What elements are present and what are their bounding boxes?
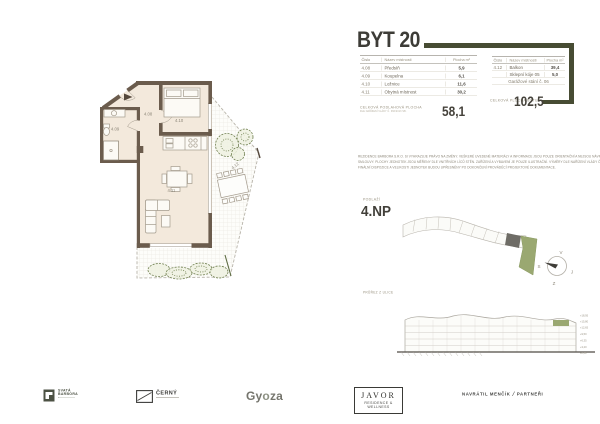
logo-svata-barbora: SVATÁ BARBORA bbox=[43, 389, 98, 415]
compass-west-label: Z bbox=[553, 281, 556, 286]
room-number: 4.11 bbox=[360, 89, 382, 94]
cerny-name: ČERNÝ bbox=[156, 390, 179, 396]
room-name: Koupelna bbox=[382, 73, 446, 78]
svata-barbora-dots bbox=[58, 397, 75, 398]
table-header-row: Číslo Název místnosti Plocha m² bbox=[360, 56, 477, 65]
total-floor-area-value: 58,1 bbox=[442, 103, 465, 119]
cerny-underline bbox=[156, 397, 179, 398]
room-label-living: 4.11 bbox=[168, 188, 177, 193]
total-floor-area-label: CELKOVÁ PODLAHOVÁ PLOCHA bbox=[360, 106, 422, 110]
table-row: 4.10 Ložnice 11,6 bbox=[360, 80, 477, 88]
room-table-left: Číslo Název místnosti Plocha m² 4.08 Pře… bbox=[360, 55, 478, 95]
col-header-number: Číslo bbox=[360, 57, 382, 62]
room-area: 39,4 bbox=[545, 65, 566, 70]
compass-east-label: V bbox=[559, 250, 562, 255]
room-number: 4.09 bbox=[360, 73, 382, 78]
room-number: 4.10 bbox=[360, 81, 382, 86]
room-name: Obytná místnost bbox=[382, 89, 446, 94]
section-unit-highlight bbox=[553, 320, 569, 326]
logo-navratil-mencik: NAVRÁTIL MENČÍK / PARTNEŘI bbox=[462, 390, 600, 400]
floorplan-sheet: 4.08 4.09 4.10 4.11 4.12 BYT 20 Číslo Ná… bbox=[0, 0, 600, 424]
total-floor-area-note: DLE NAŘÍZENÍ VLÁDY Č. 366/2013 SB. bbox=[360, 110, 422, 113]
room-name: Ložnice bbox=[382, 81, 446, 86]
room-table-right: Číslo Název místnosti Plocha m² 4.12 Bal… bbox=[492, 56, 565, 86]
building-section: +18,95 +15,80 +12,65 +9,50 +6,35 +3,20 ±… bbox=[395, 296, 600, 362]
table-row: 4.08 Předsíň 5,9 bbox=[360, 64, 477, 72]
level-label: +6,35 bbox=[580, 339, 587, 343]
level-label: +18,95 bbox=[580, 314, 589, 318]
room-name: Balkon bbox=[507, 65, 545, 70]
gyoza-text-end: za bbox=[270, 389, 283, 403]
compass: V S J Z bbox=[537, 250, 573, 286]
total-unit-area-value: 102,5 bbox=[514, 93, 544, 109]
col-header-area: Plocha m² bbox=[545, 58, 566, 63]
level-label: +3,20 bbox=[580, 345, 587, 349]
disclaimer: REZIDENCE BARBORA S.R.O. SI VYHRAZUJE PR… bbox=[358, 154, 598, 174]
room-area: 5,0 bbox=[545, 72, 566, 77]
javor-subtitle: RESIDENCE & WELLNESS bbox=[360, 401, 398, 409]
room-area: 6,1 bbox=[446, 73, 478, 78]
table-row: 4.11 Obytná místnost 30,2 bbox=[360, 88, 477, 96]
navratil-name: NAVRÁTIL MENČÍK bbox=[462, 391, 510, 396]
disclaimer-line: FINÁLNÍ DISPOZICE A VELIKOSTI JEDNOTEK B… bbox=[358, 165, 600, 171]
page-title: BYT 20 bbox=[357, 27, 420, 53]
room-label-bath: 4.09 bbox=[111, 127, 120, 132]
level-label: ±0,00 bbox=[580, 351, 587, 355]
section-label: PRŮŘEZ Z ULICE bbox=[363, 291, 393, 295]
room-name: Sklepní kóje 05 bbox=[507, 72, 545, 77]
table-header-row: Číslo Název místnosti Plocha m² bbox=[492, 57, 565, 65]
ground-hatch bbox=[401, 352, 482, 356]
room-area: 30,2 bbox=[446, 89, 478, 94]
logo-javor: JAVOR RESIDENCE & WELLNESS bbox=[354, 387, 403, 414]
level-label: +15,80 bbox=[580, 320, 589, 324]
room-area: 11,6 bbox=[446, 81, 478, 86]
accent-bar-right bbox=[569, 43, 574, 104]
room-number: 4.08 bbox=[360, 65, 382, 70]
floor-label: PODLAŽÍ bbox=[363, 198, 380, 202]
level-label: +12,65 bbox=[580, 326, 589, 330]
col-header-number: Číslo bbox=[492, 58, 507, 63]
col-header-area: Plocha m² bbox=[446, 57, 478, 62]
logo-cerny: ČERNÝ bbox=[136, 390, 202, 404]
table-row-garage: Garážové stání č. 06 bbox=[492, 78, 565, 85]
navratil-slash: / bbox=[512, 390, 514, 398]
logo-gyoza: Gyoza bbox=[246, 389, 283, 403]
floor-value: 4.NP bbox=[361, 203, 391, 220]
section-outline bbox=[405, 315, 576, 352]
table-row: Sklepní kóje 05 5,0 bbox=[492, 71, 565, 78]
compass-north-label: S bbox=[537, 264, 540, 269]
level-label: +9,50 bbox=[580, 332, 587, 336]
compass-south-label: J bbox=[571, 270, 573, 275]
cerny-icon bbox=[136, 390, 153, 403]
section-level-labels: +18,95 +15,80 +12,65 +9,50 +6,35 +3,20 ±… bbox=[580, 314, 589, 356]
room-area: 5,9 bbox=[446, 65, 478, 70]
room-number: 4.12 bbox=[492, 65, 507, 70]
table-row: 4.12 Balkon 39,4 bbox=[492, 64, 565, 71]
col-header-name: Název místnosti bbox=[507, 58, 545, 63]
room-label-hall: 4.08 bbox=[144, 112, 153, 117]
javor-name: JAVOR bbox=[355, 391, 402, 400]
table-row: 4.09 Koupelna 6,1 bbox=[360, 72, 477, 80]
svata-barbora-name-line2: BARBORA bbox=[58, 393, 78, 397]
room-label-bedroom: 4.10 bbox=[175, 118, 184, 123]
accent-bar-top bbox=[424, 43, 574, 48]
room-name: Předsíň bbox=[382, 65, 446, 70]
svata-barbora-icon bbox=[43, 389, 55, 402]
gyoza-o-glyph: o bbox=[262, 389, 270, 403]
apartment-floor-plan: 4.08 4.09 4.10 4.11 4.12 bbox=[55, 50, 350, 325]
col-header-name: Název místnosti bbox=[382, 57, 446, 62]
gyoza-text-start: Gy bbox=[246, 389, 262, 403]
site-plan: V S J Z bbox=[395, 195, 595, 295]
navratil-partner: PARTNEŘI bbox=[517, 391, 543, 396]
garage-label: Garážové stání č. 06 bbox=[508, 79, 549, 84]
